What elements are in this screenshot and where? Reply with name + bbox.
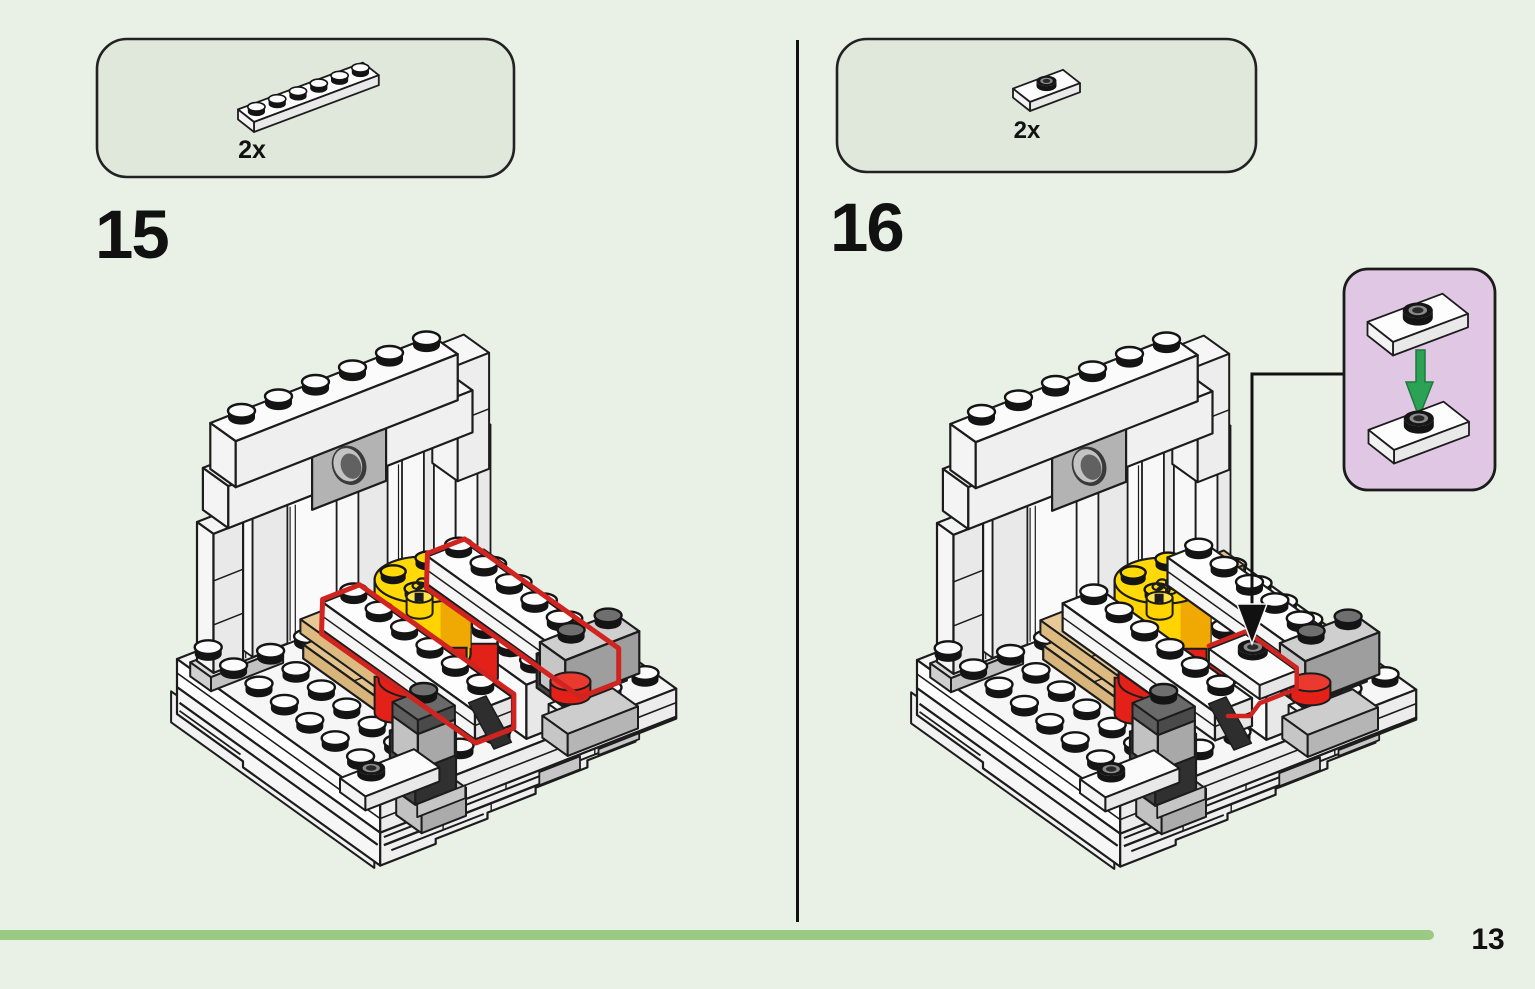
svg-text:13: 13 xyxy=(1471,923,1504,956)
svg-text:2x: 2x xyxy=(238,136,266,164)
svg-text:16: 16 xyxy=(830,189,903,266)
svg-text:2x: 2x xyxy=(1014,117,1041,144)
svg-text:15: 15 xyxy=(95,196,168,273)
